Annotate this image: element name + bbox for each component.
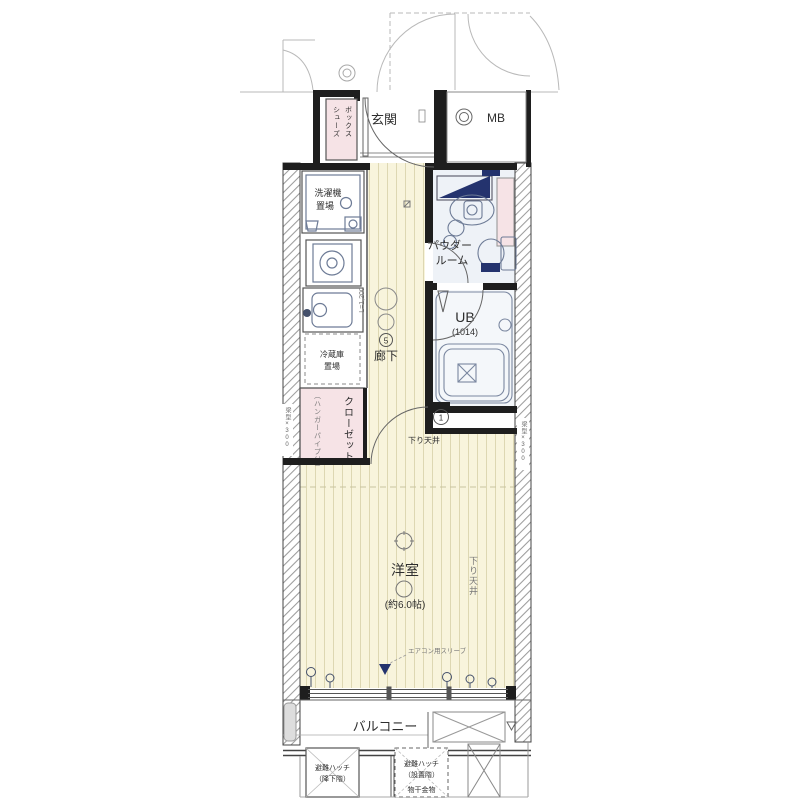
evac-left-label-1: 避難ハッチ <box>315 763 350 772</box>
evac-right-label-1: 避難ハッチ <box>404 759 439 768</box>
upper-cabinet <box>497 178 514 246</box>
bath-floor <box>433 290 515 406</box>
kitchen-sink <box>303 288 363 332</box>
corridor-dim: L=1,200 <box>359 287 366 313</box>
side-panel <box>468 744 500 797</box>
evac-hatch-left: 避難ハッチ （降下階） <box>306 748 359 797</box>
lowered-ceiling-door: 下り天井 <box>408 435 440 445</box>
stove <box>306 240 361 286</box>
common-corridor-outline <box>240 13 559 92</box>
meter-box <box>447 92 526 162</box>
laundry-hardware-label: 物干金物 <box>408 785 436 794</box>
shoe-box-label-2: ボックス <box>345 106 353 138</box>
bath-label: UB <box>455 309 474 325</box>
washer-label-2: 置場 <box>316 200 334 211</box>
entrance-label: 玄関 <box>371 112 397 127</box>
shoe-box-label-1: シューズ <box>333 106 341 138</box>
lowered-ceiling-side: 下り天井 <box>468 556 478 596</box>
wall-note-left: 梁型×300 <box>284 406 291 449</box>
room-label: 洋室 <box>391 562 419 578</box>
corridor-mark: 5 <box>384 337 389 346</box>
drain-pipe <box>284 703 296 741</box>
shoe-box: シューズ ボックス <box>326 99 357 160</box>
room-size: (約6.0帖) <box>385 598 426 611</box>
evac-left-label-2: （降下階） <box>315 774 350 783</box>
floor-plan-page: 冷蔵庫 置場 クローゼット （ハンガーパイプ付） パウダー ルーム UB (10… <box>0 0 800 800</box>
balcony-label: バルコニー <box>353 719 418 734</box>
meter-box-label: MB <box>487 111 505 125</box>
corridor-label: 廊下 <box>374 348 398 363</box>
evac-hatch-right: 避難ハッチ （設置階） 物干金物 <box>395 748 448 797</box>
closet-label: クローゼット <box>342 396 354 462</box>
floor-plan-svg: 冷蔵庫 置場 クローゼット （ハンガーパイプ付） パウダー ルーム UB (10… <box>0 0 800 800</box>
ac-note: エアコン用スリーブ <box>408 646 467 655</box>
washer-label-1: 洗濯機 <box>314 187 341 198</box>
window <box>283 687 531 700</box>
fridge-label-2: 置場 <box>324 361 340 371</box>
fridge-label-1: 冷蔵庫 <box>320 349 344 359</box>
door-mark: 1 <box>439 414 444 423</box>
evac-right-label-2: （設置階） <box>404 770 439 779</box>
fridge-space <box>305 334 360 384</box>
wall-note-right: 梁型×300 <box>520 420 527 463</box>
